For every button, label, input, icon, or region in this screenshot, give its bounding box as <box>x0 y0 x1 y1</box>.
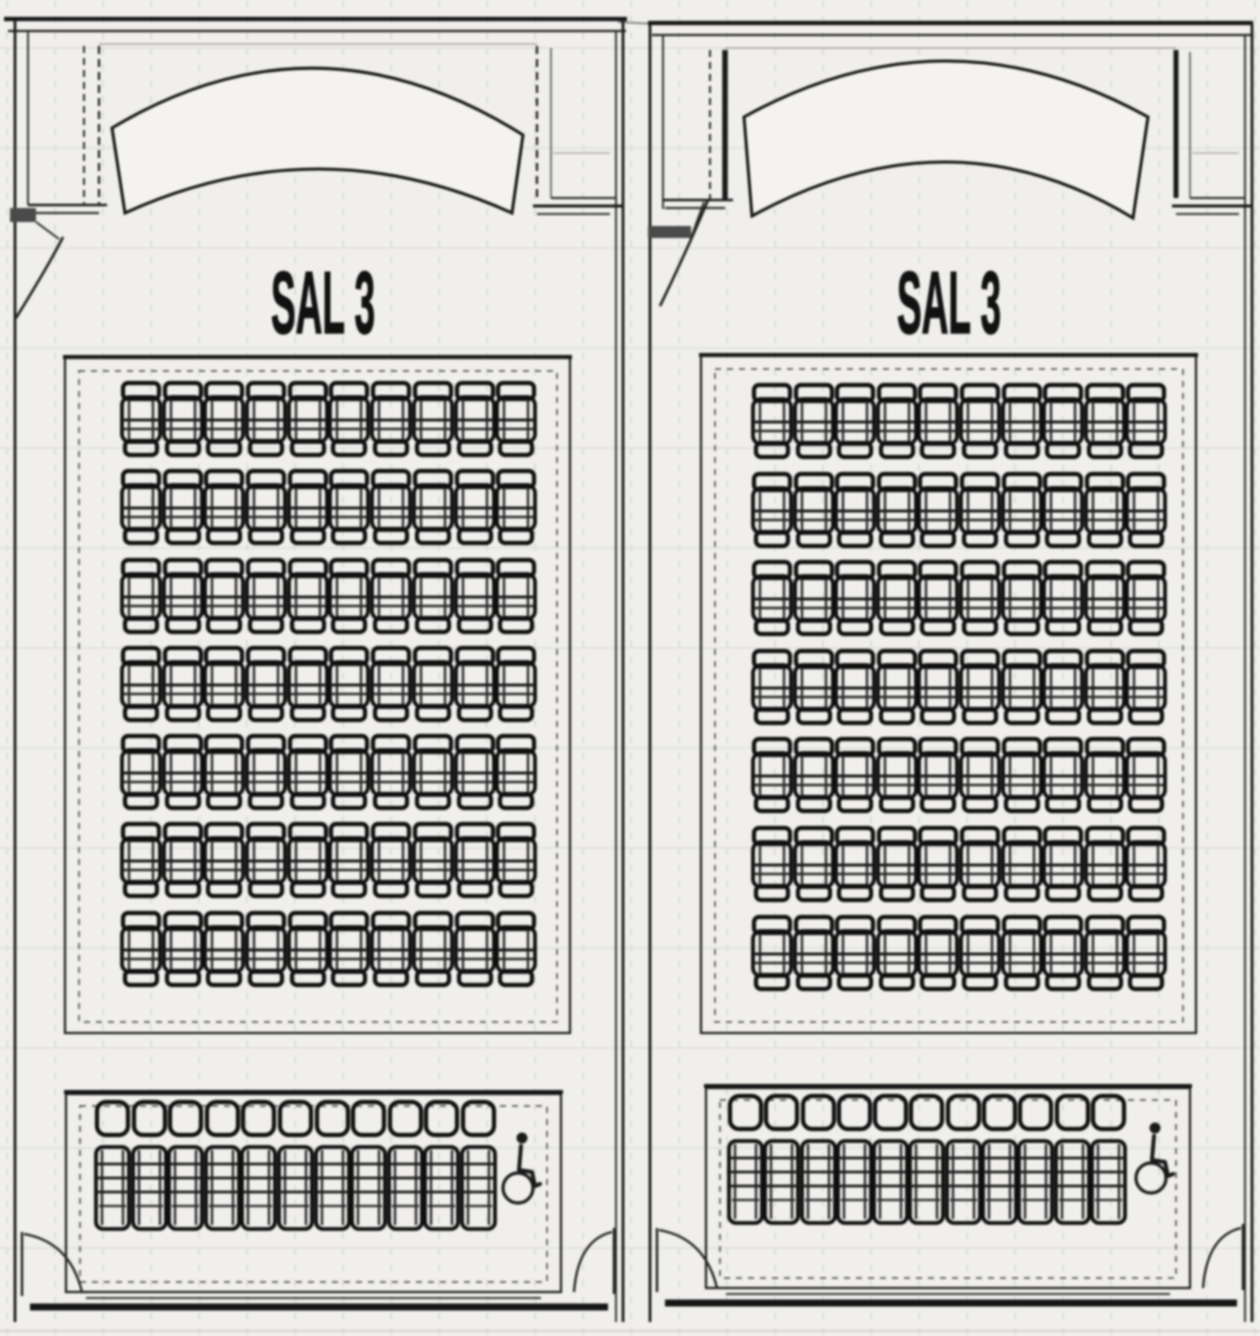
svg-text:SAL 3: SAL 3 <box>897 255 1001 353</box>
svg-text:SAL 3: SAL 3 <box>271 255 375 353</box>
